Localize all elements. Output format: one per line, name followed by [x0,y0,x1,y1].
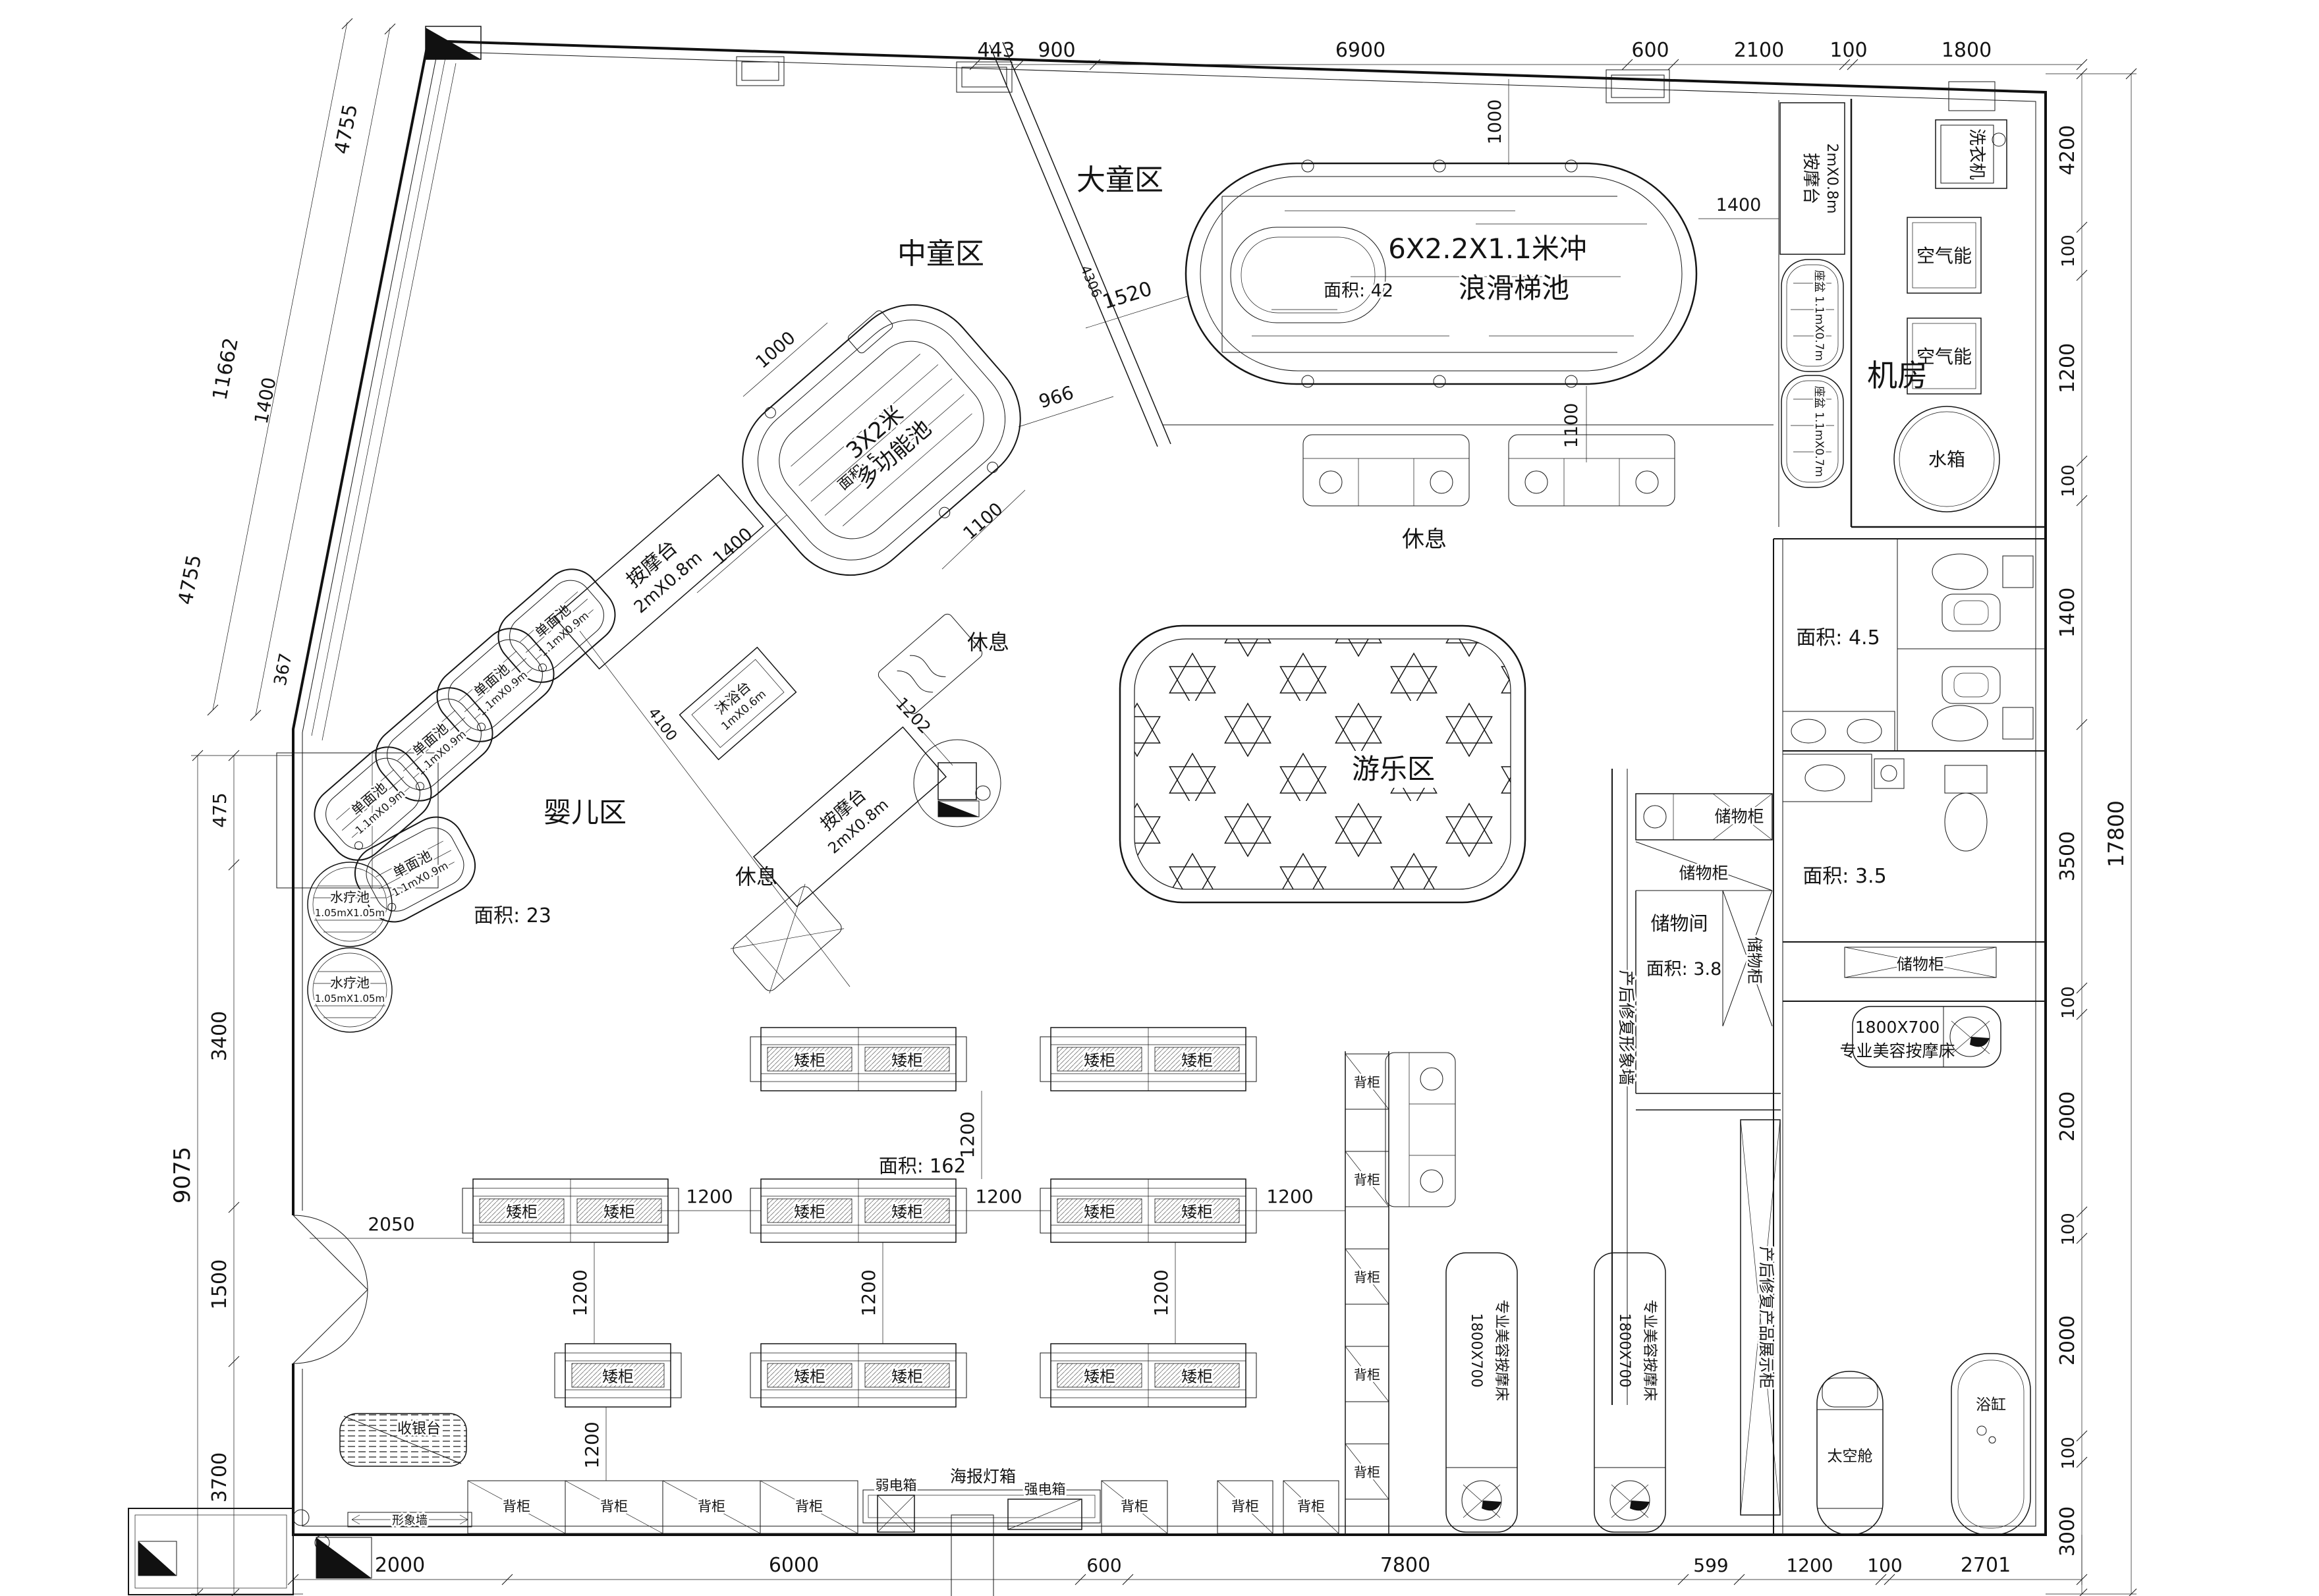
sales-area-label: 面积: 162 [879,1155,966,1177]
back-cabinet-b4-label: 背柜 [795,1499,823,1514]
storage-area: 储物柜 储物柜 储物间 面积: 3.8 储物柜 产后修复形象墙 产后修复产品展示… [1617,794,1781,1515]
low-cabinet-label: 矮柜 [794,1367,825,1386]
dim-1200-h1: 1200 [686,1186,733,1207]
spa-pool-2-size: 1.05mX1.05m [315,993,385,1004]
low-cabinet-group-8: 矮柜 矮柜 [1040,1344,1256,1407]
multi-function-pool: 面积: 5 3X2米 多功能池 [714,276,1050,605]
back-cabinet-b6: 背柜 [1217,1481,1273,1533]
beauty-bed-h-label: 专业美容按摩床 [1839,1041,1955,1060]
seat-basin-2: 座盆 1.1mX0.7m [1781,375,1843,487]
back-cabinet-c5-label: 背柜 [1354,1464,1380,1480]
low-cabinet-label: 矮柜 [506,1203,538,1221]
seat-basin-2-label: 座盆 1.1mX0.7m [1812,386,1826,477]
cashier-label: 收银台 [397,1421,441,1437]
beauty-bed-h-size: 1800X700 [1855,1018,1940,1037]
dim-diag-367: 367 [271,651,296,687]
strong-box-label: 强电箱 [1024,1481,1066,1497]
dim-top-6900: 6900 [1335,39,1385,62]
back-cabinet-b1-label: 背柜 [503,1499,530,1514]
back-cabinet-b3: 背柜 [663,1481,760,1533]
surf-pool-area: 面积: 42 [1324,281,1393,301]
dim-4306: 4306 [1077,263,1105,300]
dim-1100-multi: 1100 [959,499,1007,543]
storage-cabinet-3-label: 储物柜 [1745,937,1764,984]
dim-bottom-100: 100 [1867,1555,1902,1576]
bathroom-bottom: 面积: 3.5 储物柜 [1802,765,1996,977]
low-cabinet-group-2: 矮柜 矮柜 [1040,1028,1256,1091]
beauty-bed-v1-size: 1800X700 [1468,1313,1484,1387]
low-cabinet-label: 矮柜 [1084,1203,1115,1221]
spa-pool-1-name: 水疗池 [330,889,370,905]
air-energy-1-label: 空气能 [1916,245,1972,267]
floor-plan: 443 900 6900 600 2100 100 1800 4200 100 … [0,0,2319,1596]
dim-4100: 4100 [644,705,680,744]
low-cabinet-label: 矮柜 [794,1203,825,1221]
back-cabinet-c3: 背柜 [1345,1249,1389,1304]
dim-top-2100: 2100 [1734,39,1784,62]
dim-bottom-2000: 2000 [375,1554,425,1577]
massage-table-strip: 按摩台 2mX0.8m [1780,103,1845,254]
beauty-bed-vertical-2: 1800X700 专业美容按摩床 [1594,1253,1665,1532]
beauty-bed-v1-label: 专业美容按摩床 [1493,1300,1509,1401]
dim-right-100b: 100 [2059,464,2079,497]
column-symbol [914,740,1001,827]
dim-bottom-7800: 7800 [1380,1554,1430,1577]
squat-toilet-2 [1942,667,2000,703]
dim-1000-multi: 1000 [752,327,799,372]
dim-2050: 2050 [368,1213,414,1235]
surf-pool-name-2: 浪滑梯池 [1459,272,1569,304]
dim-966: 966 [1036,381,1076,412]
dim-1200-v1: 1200 [957,1111,978,1158]
storage-cabinet-1-label: 储物柜 [1714,807,1764,826]
dim-1202-line: 1202 [892,694,953,765]
back-cabinet-c2: 背柜 [1345,1151,1389,1207]
low-cabinet-label: 矮柜 [891,1051,923,1070]
seat-basin-1-label: 座盆 1.1mX0.7m [1812,270,1826,361]
play-zone-label: 游乐区 [1352,753,1435,785]
dim-left-3400: 3400 [208,1011,231,1061]
spa-pool-2-name: 水疗池 [330,975,370,991]
surf-slide-pool: 6X2.2X1.1米冲 浪滑梯池 面积: 42 [1186,160,1696,387]
seat-basin-1: 座盆 1.1mX0.7m [1781,260,1843,371]
dim-1200-v4: 1200 [1150,1269,1172,1316]
dim-chain-top: 443 900 6900 600 2100 100 1800 [970,39,2087,70]
dim-bottom-1200: 1200 [1786,1555,1833,1576]
beauty-bed-vertical-1: 1800X700 专业美容按摩床 [1446,1253,1517,1532]
surf-pool-name-1: 6X2.2X1.1米冲 [1388,233,1587,265]
dim-left-1500: 1500 [208,1259,231,1309]
dim-1200-h3: 1200 [1266,1186,1313,1207]
dim-right-4200: 4200 [2056,125,2079,175]
dim-chain-diagonal: 4755 11662 1400 4755 367 [174,18,395,721]
space-capsule: 太空舱 [1817,1371,1883,1535]
massage-strip-line1: 按摩台 [1801,153,1820,204]
spa-pool-2: 水疗池 1.05mX1.05m [308,948,392,1032]
dim-left-total: 9075 [169,1147,196,1204]
beauty-bed-v2-size: 1800X700 [1616,1313,1633,1387]
corner-block [128,1508,372,1595]
mid-kids-label: 中童区 [897,237,984,271]
bottom-back-cabinets: 背柜 背柜 背柜 背柜 海报灯箱 弱电箱 强电箱 背柜 背柜 背柜 [468,1467,1339,1533]
weak-current-box: 弱电箱 [876,1477,917,1532]
massage-table-1: 按摩台 2mX0.8m [554,475,763,669]
poster-lightbox-label: 海报灯箱 [950,1467,1016,1486]
dim-right-1400: 1400 [2056,588,2079,638]
back-cabinet-b5-label: 背柜 [1121,1499,1148,1514]
pr-display-label: 产后修复产品展示柜 [1757,1246,1775,1389]
dim-1200-v2: 1200 [569,1269,591,1316]
low-cabinet-label: 矮柜 [794,1051,825,1070]
dim-1400-top: 1400 [1716,195,1762,215]
dim-right-100c: 100 [2059,986,2079,1019]
bathtub: 浴缸 [1951,1354,2030,1535]
back-cabinet-b1: 背柜 [468,1481,565,1533]
low-cabinet-group-4: 矮柜 矮柜 [750,1179,966,1242]
back-cabinet-b6-label: 背柜 [1231,1499,1259,1514]
double-door [293,1215,368,1363]
back-cabinet-b2-label: 背柜 [600,1499,628,1514]
squat-toilet-1 [1942,594,2000,631]
dim-left-475: 475 [209,792,231,827]
low-cabinet-group-3: 矮柜 矮柜 [462,1179,679,1242]
back-cabinet-b4: 背柜 [760,1481,858,1533]
spa-pool-1-size: 1.05mX1.05m [315,907,385,919]
dim-right-100e: 100 [2059,1437,2079,1470]
dim-1200-v5: 1200 [581,1421,603,1468]
bathtub-label: 浴缸 [1976,1396,2006,1414]
dim-right-2000a: 2000 [2056,1091,2079,1142]
sofa-vertical [1385,1053,1455,1207]
beauty-bed-horizontal: 1800X700 专业美容按摩床 [1839,1006,2001,1067]
air-energy-2-label: 空气能 [1916,346,1972,368]
back-cabinet-b2: 背柜 [565,1481,663,1533]
weak-box-label: 弱电箱 [876,1477,917,1493]
dim-diag-1400: 1400 [250,375,281,426]
rest-label-1: 休息 [1402,526,1447,553]
low-cabinet-label: 矮柜 [891,1203,923,1221]
machine-room: 机房 洗衣机 空气能 空气能 水箱 [1867,120,2007,512]
lounge-chair-1 [876,612,984,716]
low-cabinet-label: 矮柜 [1084,1051,1115,1070]
dim-right-3000: 3000 [2056,1506,2079,1556]
big-kids-label: 大童区 [1076,163,1163,197]
air-energy-unit-1: 空气能 [1907,217,1981,293]
cabinet-dims: 2050 1200 1200 1200 1200 1200 1200 1200 … [310,1091,1345,1481]
cashier-desk: 收银台 [340,1414,466,1466]
massage-strip-line2: 2mX0.8m [1824,144,1840,214]
shower-table: 沐浴台 1mX0.6m [680,647,796,759]
image-wall-label: 形象墙 [392,1514,428,1527]
back-cabinet-c4-label: 背柜 [1354,1367,1380,1383]
low-cabinet-group-1: 矮柜 矮柜 [750,1028,966,1091]
back-cabinet-b7-label: 背柜 [1297,1499,1325,1514]
low-cabinet-group-5: 矮柜 矮柜 [1040,1179,1256,1242]
dim-left-3700: 3700 [208,1452,231,1502]
storage-room-label: 储物间 [1650,912,1708,935]
toilet-1 [1932,554,2033,590]
space-capsule-label: 太空舱 [1828,1448,1873,1465]
back-cabinet-b7: 背柜 [1283,1481,1339,1533]
water-tank: 水箱 [1894,406,1999,512]
dim-diag-4755b: 4755 [174,553,206,607]
dim-top-100: 100 [1830,39,1867,62]
dim-1200-v3: 1200 [858,1269,880,1316]
beauty-bed-v2-label: 专业美容按摩床 [1641,1300,1658,1401]
toilet-3 [1945,765,1987,851]
toilet-2 [1932,705,2033,741]
back-cabinet-c1: 背柜 [1345,1054,1389,1109]
low-cabinet-label: 矮柜 [891,1367,923,1386]
pr-wall-label: 产后修复形象墙 [1617,970,1636,1085]
low-cabinet-group-7: 矮柜 矮柜 [750,1344,966,1407]
back-cabinet-column: 背柜 背柜 背柜 背柜 背柜 [1345,1051,1389,1535]
sofa-group-1 [1303,435,1469,506]
low-cabinet-label: 矮柜 [1181,1051,1213,1070]
dim-right-3500: 3500 [2056,831,2079,881]
storage-cabinet-under-label: 储物柜 [1897,955,1944,974]
back-cabinet-c2-label: 背柜 [1354,1172,1380,1188]
sofa-group-2 [1509,435,1675,506]
storage-cabinet-under: 储物柜 [1845,947,1996,977]
spa-pool-1: 水疗池 1.05mX1.05m [308,862,392,947]
low-cabinet-label: 矮柜 [603,1203,635,1221]
pr-display-cabinet: 产后修复产品展示柜 [1741,1120,1780,1515]
dim-right-total: 17800 [2104,800,2129,867]
dim-bottom-6000: 6000 [769,1554,819,1577]
washing-machine: 洗衣机 [1936,120,2007,188]
massage-table-2: 按摩台 2mX0.8m [754,727,946,906]
back-cabinet-b5: 背柜 [1102,1481,1167,1533]
image-wall: 形象墙 [348,1512,472,1527]
back-cabinet-c3-label: 背柜 [1354,1269,1380,1285]
low-cabinet-label: 矮柜 [1181,1203,1213,1221]
back-cabinet-c4: 背柜 [1345,1346,1389,1402]
dim-right-2000b: 2000 [2056,1315,2079,1365]
dim-bottom-600: 600 [1086,1555,1121,1576]
rest-label-2: 休息 [967,630,1009,655]
low-cabinet-label: 矮柜 [1084,1367,1115,1386]
dim-diag-11662: 11662 [208,336,243,402]
dim-right-1200: 1200 [2056,343,2079,393]
low-cabinet-label: 矮柜 [602,1367,634,1386]
dim-chain-right: 4200 100 1200 100 1400 3500 100 2000 100… [2046,69,2137,1596]
dim-1100-right: 1100 [1561,403,1582,449]
dim-top-1800: 1800 [1942,39,1992,62]
low-cabinet-label: 矮柜 [1181,1367,1213,1386]
dim-bottom-599: 599 [1693,1555,1728,1576]
water-tank-label: 水箱 [1928,449,1965,470]
dim-right-100d: 100 [2059,1213,2079,1246]
storage-room-area: 面积: 3.8 [1646,959,1722,979]
dim-diag-4755a: 4755 [330,102,362,156]
lounge-chair-crossed [731,884,844,993]
back-cabinet-b3-label: 背柜 [698,1499,725,1514]
dim-top-900: 900 [1038,39,1075,62]
dim-top-600: 600 [1631,39,1669,62]
dim-1000-top: 1000 [1485,99,1505,145]
infant-zone-label: 婴儿区 [544,796,627,829]
dim-chain-left: 475 3400 1500 3700 9075 [169,750,303,1596]
strong-current-box: 强电箱 [1008,1481,1082,1529]
dim-1400-multi: 1400 [709,524,756,568]
dim-1200-h2: 1200 [975,1186,1022,1207]
dim-chain-bottom: 2000 6000 600 7800 599 1200 100 2701 [288,1535,2087,1585]
storage-cabinet-2-label: 储物柜 [1679,864,1728,883]
washing-machine-label: 洗衣机 [1967,128,1986,180]
bathroom-bottom-area: 面积: 3.5 [1802,865,1886,888]
dim-1520: 1520 [1100,277,1155,314]
infant-area-label: 面积: 23 [474,904,551,927]
play-pool: 游乐区 [1120,626,1525,902]
rest-label-3: 休息 [735,864,777,889]
bathroom-top: 面积: 4.5 [1783,554,2033,802]
dim-bottom-2701: 2701 [1961,1554,2011,1577]
low-cabinet-group-6: 矮柜 [555,1344,681,1407]
surf-pool-dims: 1000 1400 1100 1520 966 4306 [1019,79,1779,462]
dim-right-100a: 100 [2059,234,2079,267]
back-cabinet-c5: 背柜 [1345,1444,1389,1499]
back-cabinet-c1-label: 背柜 [1354,1074,1380,1090]
bathroom-top-area: 面积: 4.5 [1796,626,1880,649]
